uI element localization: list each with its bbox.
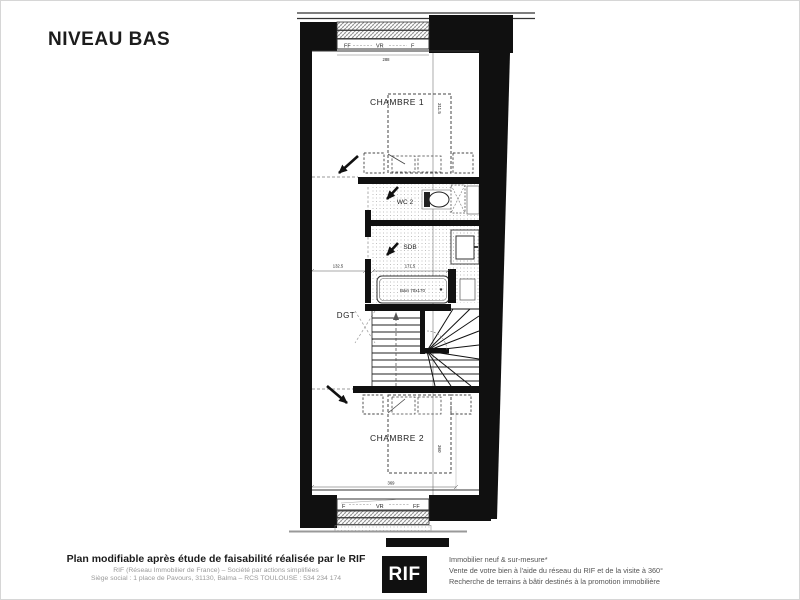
sdb-label: SDB [403, 244, 416, 251]
footer-company: RIF (Réseau Immobilier de France) – Soci… [51, 567, 381, 575]
window-top [337, 22, 429, 55]
chambre2-width-dim: 369 [388, 481, 396, 486]
footer-service-2: Vente de votre bien à l'aide du réseau d… [449, 566, 779, 577]
window-bottom-vr-label: VR [376, 504, 384, 510]
chambre2-depth-dim: 360 [437, 445, 442, 453]
window-bottom-ff-label: FF [413, 504, 420, 510]
footer-service-3: Recherche de terrains à bâtir destinés à… [449, 577, 779, 588]
bathtub-label: Bain 70x170 [400, 288, 426, 293]
floorplan-drawing: CHAMBRE 1 311.5 WC 2 SDB Bain 7 [1, 1, 800, 600]
sdb-room [451, 230, 479, 264]
footer-legal-block: Plan modifiable après étude de faisabili… [51, 553, 381, 584]
window-top-ff-label: FF [344, 44, 351, 50]
dgt-label: DGT [337, 311, 355, 320]
chambre2-label: CHAMBRE 2 [370, 433, 424, 443]
wc2-label: WC 2 [397, 199, 414, 206]
chambre1-depth-dim: 311.5 [437, 103, 442, 114]
footer-disclaimer: Plan modifiable après étude de faisabili… [51, 553, 381, 565]
footer-address: Siège social : 1 place de Pavours, 31130… [51, 575, 381, 583]
rif-logo: RIF [382, 556, 427, 593]
footer: Plan modifiable après étude de faisabili… [1, 547, 800, 600]
staircase [312, 309, 479, 389]
chambre1-label: CHAMBRE 1 [370, 97, 424, 107]
footer-services-block: Immobilier neuf & sur-mesure* Vente de v… [449, 555, 779, 588]
chambre2-width-dimline [310, 485, 458, 489]
hall-width-dim: 132.5 [333, 264, 344, 269]
footer-service-1: Immobilier neuf & sur-mesure* [449, 555, 779, 566]
floorplan-page: NIVEAU BAS [0, 0, 800, 600]
bath-zone-dim: 171.5 [405, 264, 416, 269]
window-top-dim: 288 [383, 57, 391, 62]
window-top-vr-label: VR [376, 44, 384, 50]
